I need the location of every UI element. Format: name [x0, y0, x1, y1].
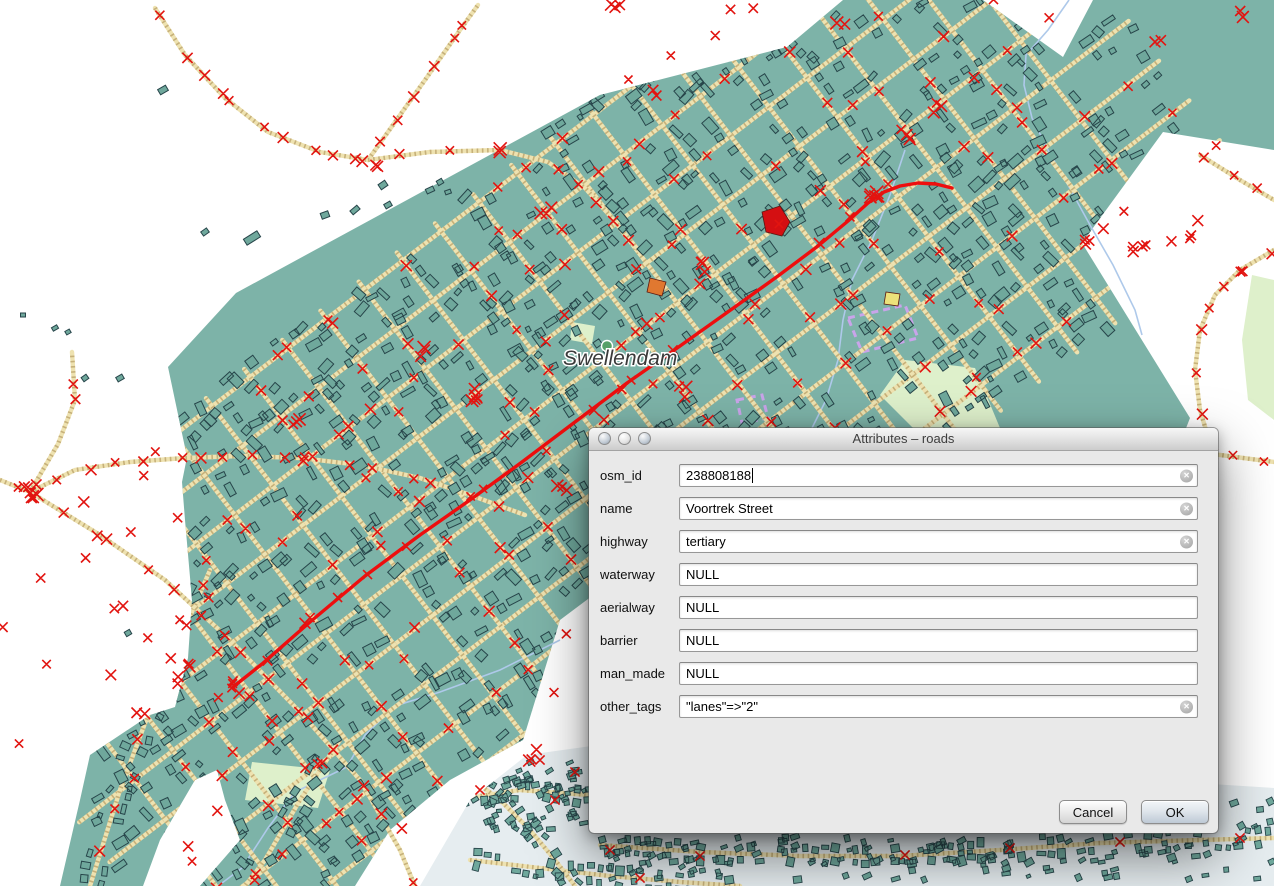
field-row-aerialway: aerialwayNULL [589, 596, 1218, 619]
field-label-barrier: barrier [589, 633, 679, 648]
aerialway-input[interactable]: NULL [679, 596, 1198, 619]
field-value: Voortrek Street [686, 501, 773, 516]
field-row-name: nameVoortrek Street× [589, 497, 1218, 520]
attributes-dialog: Attributes – roads osm_id238808188×nameV… [589, 428, 1218, 833]
clear-field-icon[interactable]: × [1180, 535, 1193, 548]
minimize-button[interactable] [618, 432, 631, 445]
field-label-highway: highway [589, 534, 679, 549]
cancel-button[interactable]: Cancel [1059, 800, 1127, 824]
close-button[interactable] [598, 432, 611, 445]
road-dots [155, 8, 368, 160]
field-label-osm_id: osm_id [589, 468, 679, 483]
field-value: tertiary [686, 534, 726, 549]
field-row-osm_id: osm_id238808188× [589, 464, 1218, 487]
place-label-swellendam: Swellendam [563, 347, 677, 370]
field-row-waterway: waterwayNULL [589, 563, 1218, 586]
dialog-titlebar[interactable]: Attributes – roads [589, 428, 1218, 451]
field-row-highway: highwaytertiary× [589, 530, 1218, 553]
clear-field-icon[interactable]: × [1180, 469, 1193, 482]
zoom-button[interactable] [638, 432, 651, 445]
field-row-man_made: man_madeNULL [589, 662, 1218, 685]
clear-field-icon[interactable]: × [1180, 700, 1193, 713]
dialog-title: Attributes – roads [589, 428, 1218, 450]
field-label-other_tags: other_tags [589, 699, 679, 714]
text-cursor [752, 468, 753, 483]
clear-field-icon[interactable]: × [1180, 502, 1193, 515]
field-row-barrier: barrierNULL [589, 629, 1218, 652]
man_made-input[interactable]: NULL [679, 662, 1198, 685]
name-input[interactable]: Voortrek Street× [679, 497, 1198, 520]
waterway-input[interactable]: NULL [679, 563, 1198, 586]
field-label-aerialway: aerialway [589, 600, 679, 615]
field-value: "lanes"=>"2" [686, 699, 758, 714]
field-row-other_tags: other_tags"lanes"=>"2"× [589, 695, 1218, 718]
barrier-input[interactable]: NULL [679, 629, 1198, 652]
field-value: NULL [686, 600, 719, 615]
road-line [155, 8, 368, 160]
ok-button[interactable]: OK [1141, 800, 1209, 824]
field-label-man_made: man_made [589, 666, 679, 681]
attribute-fields: osm_id238808188×nameVoortrek Street×high… [589, 451, 1218, 718]
field-label-name: name [589, 501, 679, 516]
special-building [884, 292, 900, 306]
field-value: NULL [686, 567, 719, 582]
highway-input[interactable]: tertiary× [679, 530, 1198, 553]
field-value: NULL [686, 633, 719, 648]
other_tags-input[interactable]: "lanes"=>"2"× [679, 695, 1198, 718]
dialog-buttons: Cancel OK [1059, 800, 1209, 824]
field-value: 238808188 [686, 468, 751, 483]
field-value: NULL [686, 666, 719, 681]
osm_id-input[interactable]: 238808188× [679, 464, 1198, 487]
traffic-lights [598, 432, 651, 445]
field-label-waterway: waterway [589, 567, 679, 582]
field-polygon [1242, 275, 1274, 420]
